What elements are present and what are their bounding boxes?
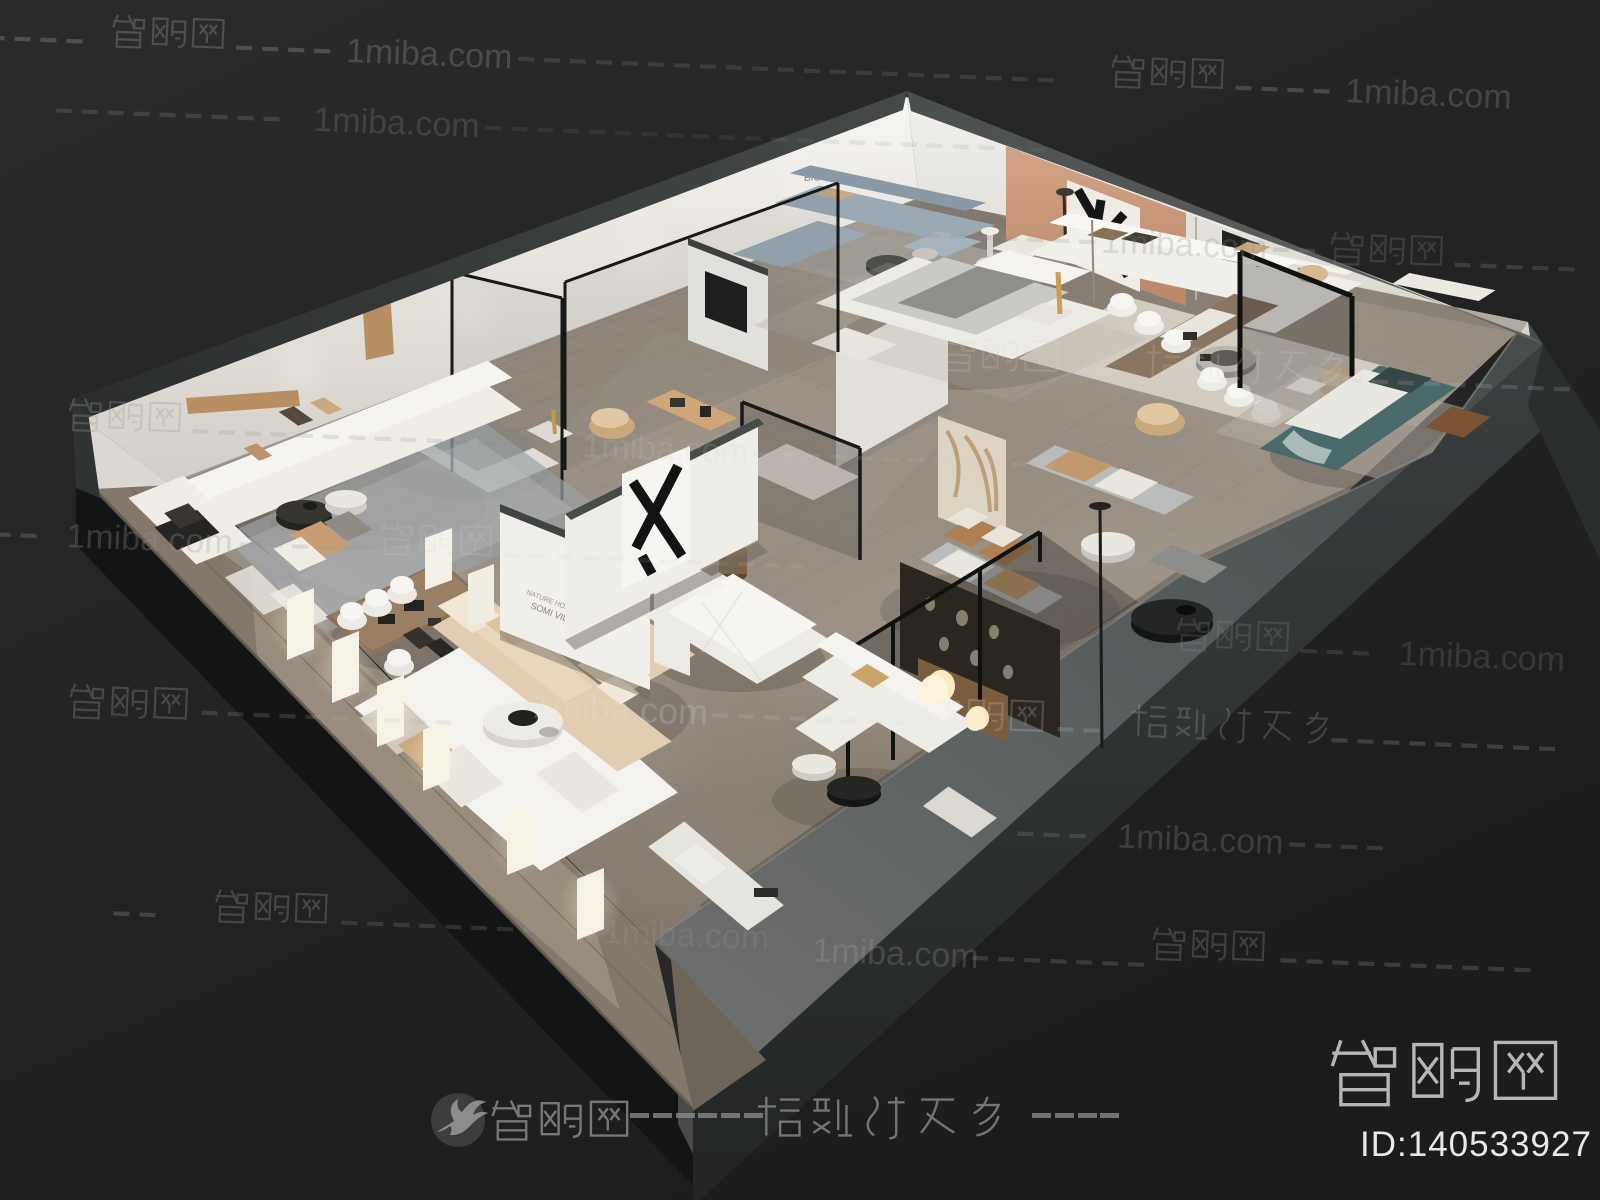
svg-text:1miba.com: 1miba.com: [345, 32, 513, 77]
svg-text:1miba.com: 1miba.com: [531, 685, 709, 733]
svg-text:1miba.com: 1miba.com: [582, 427, 750, 472]
svg-text:ID:140533927: ID:140533927: [1360, 1125, 1592, 1164]
svg-text:1miba.com: 1miba.com: [602, 913, 770, 958]
svg-text:1miba.com: 1miba.com: [1345, 72, 1513, 117]
svg-text:1miba.com: 1miba.com: [66, 517, 234, 562]
svg-text:1miba.com: 1miba.com: [1398, 635, 1566, 680]
svg-text:1miba.com: 1miba.com: [313, 101, 481, 146]
svg-text:1miba.com: 1miba.com: [812, 931, 980, 976]
svg-text:1miba.com: 1miba.com: [1117, 818, 1285, 863]
svg-text:1miba.com: 1miba.com: [1100, 222, 1268, 267]
